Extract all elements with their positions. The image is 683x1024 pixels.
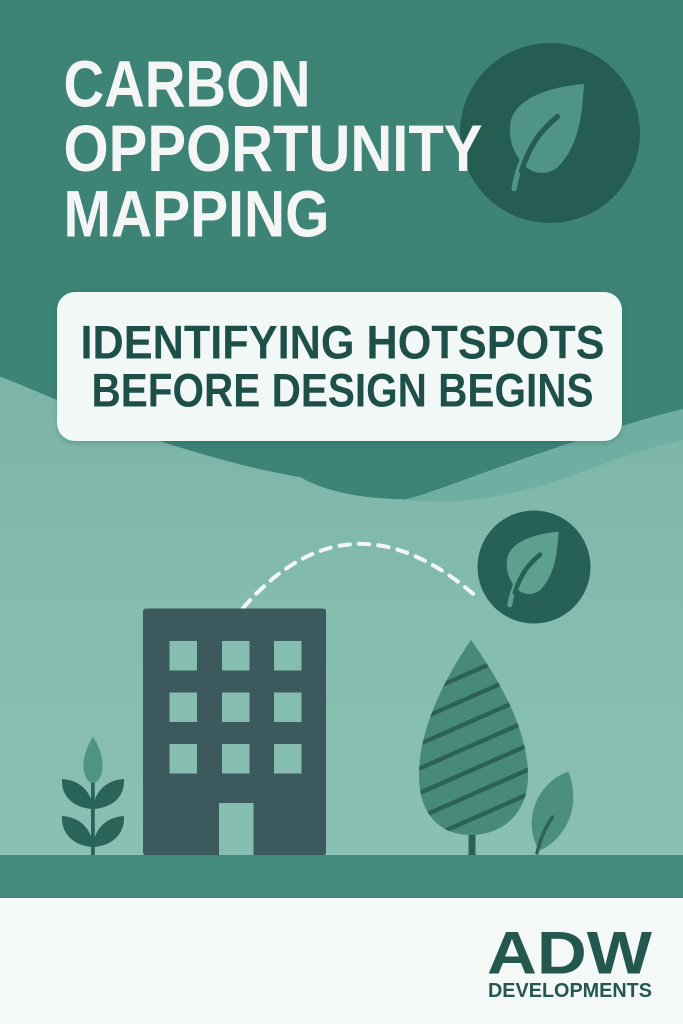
svg-text:ADW: ADW: [487, 920, 652, 987]
svg-text:DEVELOPMENTS: DEVELOPMENTS: [488, 980, 652, 1002]
svg-text:BEFORE DESIGN BEGINS: BEFORE DESIGN BEGINS: [92, 364, 594, 417]
svg-text:IDENTIFYING HOTSPOTS: IDENTIFYING HOTSPOTS: [81, 316, 605, 369]
svg-text:MAPPING: MAPPING: [64, 178, 330, 251]
svg-text:CARBON: CARBON: [64, 47, 311, 120]
svg-text:OPPORTUNITY: OPPORTUNITY: [64, 112, 483, 185]
